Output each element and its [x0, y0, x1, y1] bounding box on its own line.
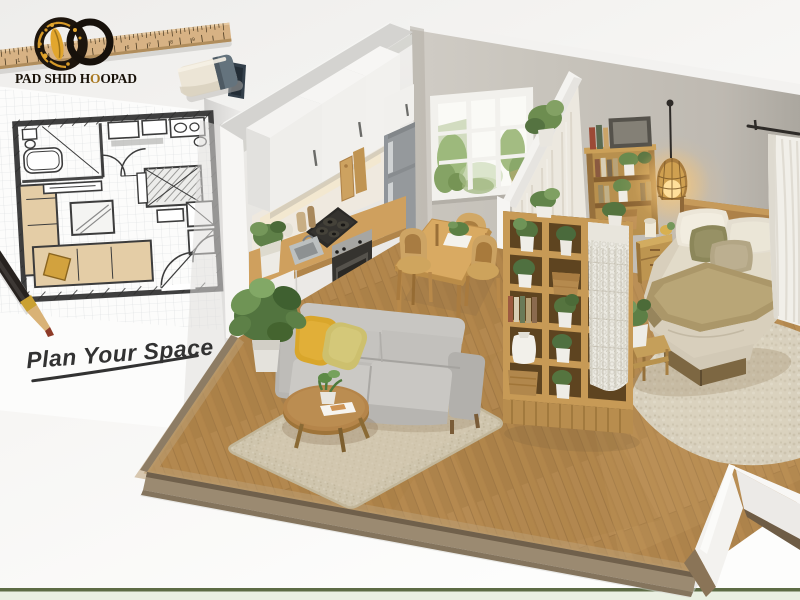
svg-text:PAD SHID HOOPAD: PAD SHID HOOPAD [15, 71, 137, 86]
